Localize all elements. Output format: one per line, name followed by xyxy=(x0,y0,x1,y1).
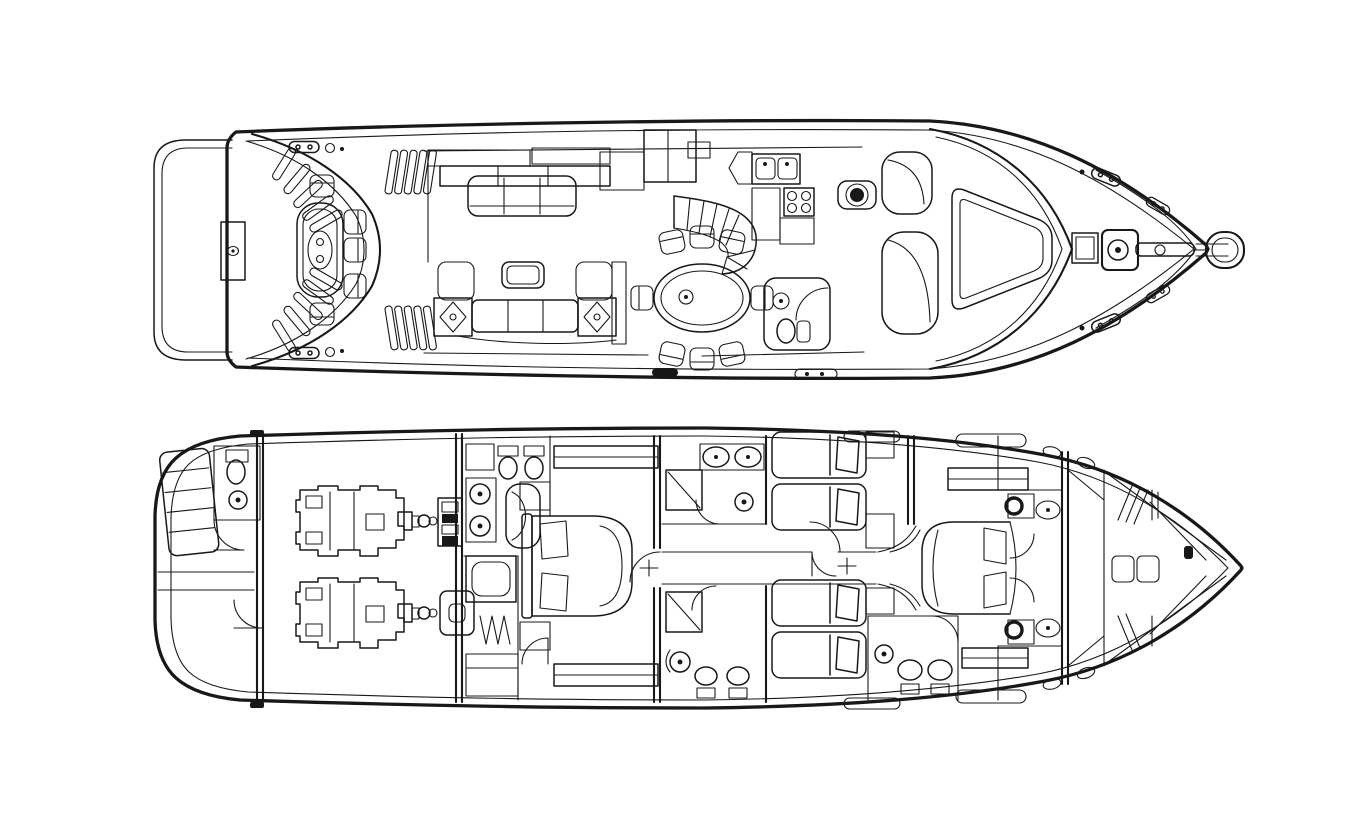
corridor xyxy=(662,526,920,610)
windshield xyxy=(930,129,1072,369)
salon-settee xyxy=(434,262,626,344)
master-dressers xyxy=(554,446,658,686)
guest-bathroom-fwd xyxy=(662,444,766,524)
bow-cleats xyxy=(1080,166,1172,333)
transom-locker xyxy=(221,222,245,280)
master-bed xyxy=(520,482,632,650)
engine-room xyxy=(296,486,474,648)
lower-deck-plan xyxy=(155,428,1242,709)
anchor-windlass xyxy=(1102,230,1206,270)
coffee-table xyxy=(502,262,544,288)
engine-starboard xyxy=(296,578,474,648)
crew-area xyxy=(158,446,262,628)
forepeak xyxy=(1068,470,1226,666)
helm-station xyxy=(838,152,938,334)
guest-cabin-lower xyxy=(772,580,894,678)
side-deck-gratings xyxy=(385,150,437,351)
hanging-locker-marks xyxy=(1118,486,1158,650)
sideboard-cabinets xyxy=(428,130,710,190)
galley xyxy=(729,152,814,244)
guest-cabin-upper xyxy=(772,432,894,552)
drawing-sheet xyxy=(0,0,1362,823)
master-cabin xyxy=(464,436,660,700)
engine-port xyxy=(296,486,462,556)
aft-deck-table xyxy=(297,175,366,325)
main-deck-plan xyxy=(154,121,1244,379)
stove xyxy=(784,188,814,216)
salon-sofa xyxy=(468,176,576,216)
transom-stairs xyxy=(246,134,380,366)
day-head xyxy=(764,278,830,350)
hull-outline xyxy=(227,121,1208,379)
yacht-deck-plans xyxy=(0,0,1362,823)
walk-in-wardrobe xyxy=(466,616,548,696)
guest-bathroom-aft xyxy=(666,586,749,698)
vip-ensuite xyxy=(998,436,1062,700)
dining-area xyxy=(631,226,773,370)
